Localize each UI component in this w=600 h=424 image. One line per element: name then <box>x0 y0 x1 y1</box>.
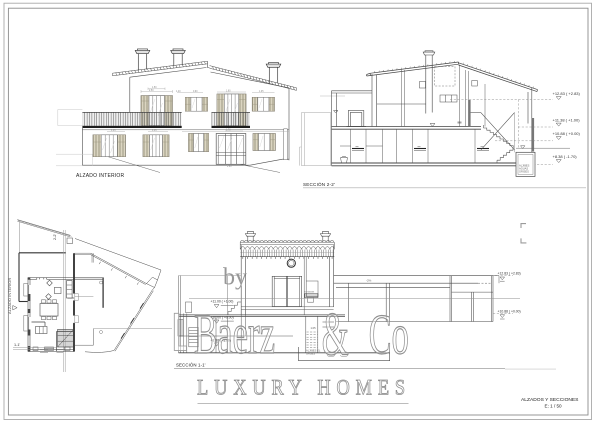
svg-text:&: & <box>322 302 349 369</box>
svg-text:+12.83 ( +2.83): +12.83 ( +2.83) <box>553 91 581 96</box>
svg-text:-2%: -2% <box>366 279 372 283</box>
svg-text:ALZADO INTERIOR: ALZADO INTERIOR <box>76 173 124 179</box>
svg-text:+11.38 ( +1.00): +11.38 ( +1.00) <box>553 118 581 123</box>
svg-text:LUXURY HOMES: LUXURY HOMES <box>197 375 411 400</box>
svg-text:2.60: 2.60 <box>227 166 232 168</box>
svg-text:1.15: 1.15 <box>152 130 157 132</box>
svg-text:+10.88 ( +0.00): +10.88 ( +0.00) <box>553 131 581 136</box>
svg-text:+12.83 ( +2.83): +12.83 ( +2.83) <box>498 272 521 276</box>
svg-text:ALZADOS Y SECCIONES: ALZADOS Y SECCIONES <box>521 397 579 403</box>
svg-text:1.40: 1.40 <box>176 91 181 93</box>
svg-text:ventanas: ventanas <box>305 291 316 294</box>
svg-text:2-2': 2-2' <box>53 234 57 240</box>
svg-text:1.05: 1.05 <box>259 91 264 93</box>
svg-text:1.15: 1.15 <box>111 130 116 132</box>
svg-text:1.05: 1.05 <box>311 326 317 330</box>
svg-text:0.90: 0.90 <box>193 91 198 93</box>
svg-text:1-1': 1-1' <box>14 343 20 347</box>
svg-text:2.50: 2.50 <box>149 90 154 92</box>
svg-text:ALZADO INTERIOR: ALZADO INTERIOR <box>7 278 12 314</box>
svg-text:Baerz: Baerz <box>194 303 275 366</box>
svg-text:Co: Co <box>369 304 409 367</box>
svg-text:+10.88 ( +0.00): +10.88 ( +0.00) <box>498 310 521 314</box>
svg-text:E: 1 / 50: E: 1 / 50 <box>545 404 563 409</box>
svg-text:GRISES: GRISES <box>519 170 529 174</box>
svg-text:+8.38 ( -1.70): +8.38 ( -1.70) <box>553 154 578 159</box>
svg-text:GRSES: GRSES <box>306 351 315 355</box>
svg-text:by: by <box>223 265 247 291</box>
svg-text:1.70: 1.70 <box>226 130 231 132</box>
svg-text:SECCIÓN 2-2': SECCIÓN 2-2' <box>303 181 335 187</box>
